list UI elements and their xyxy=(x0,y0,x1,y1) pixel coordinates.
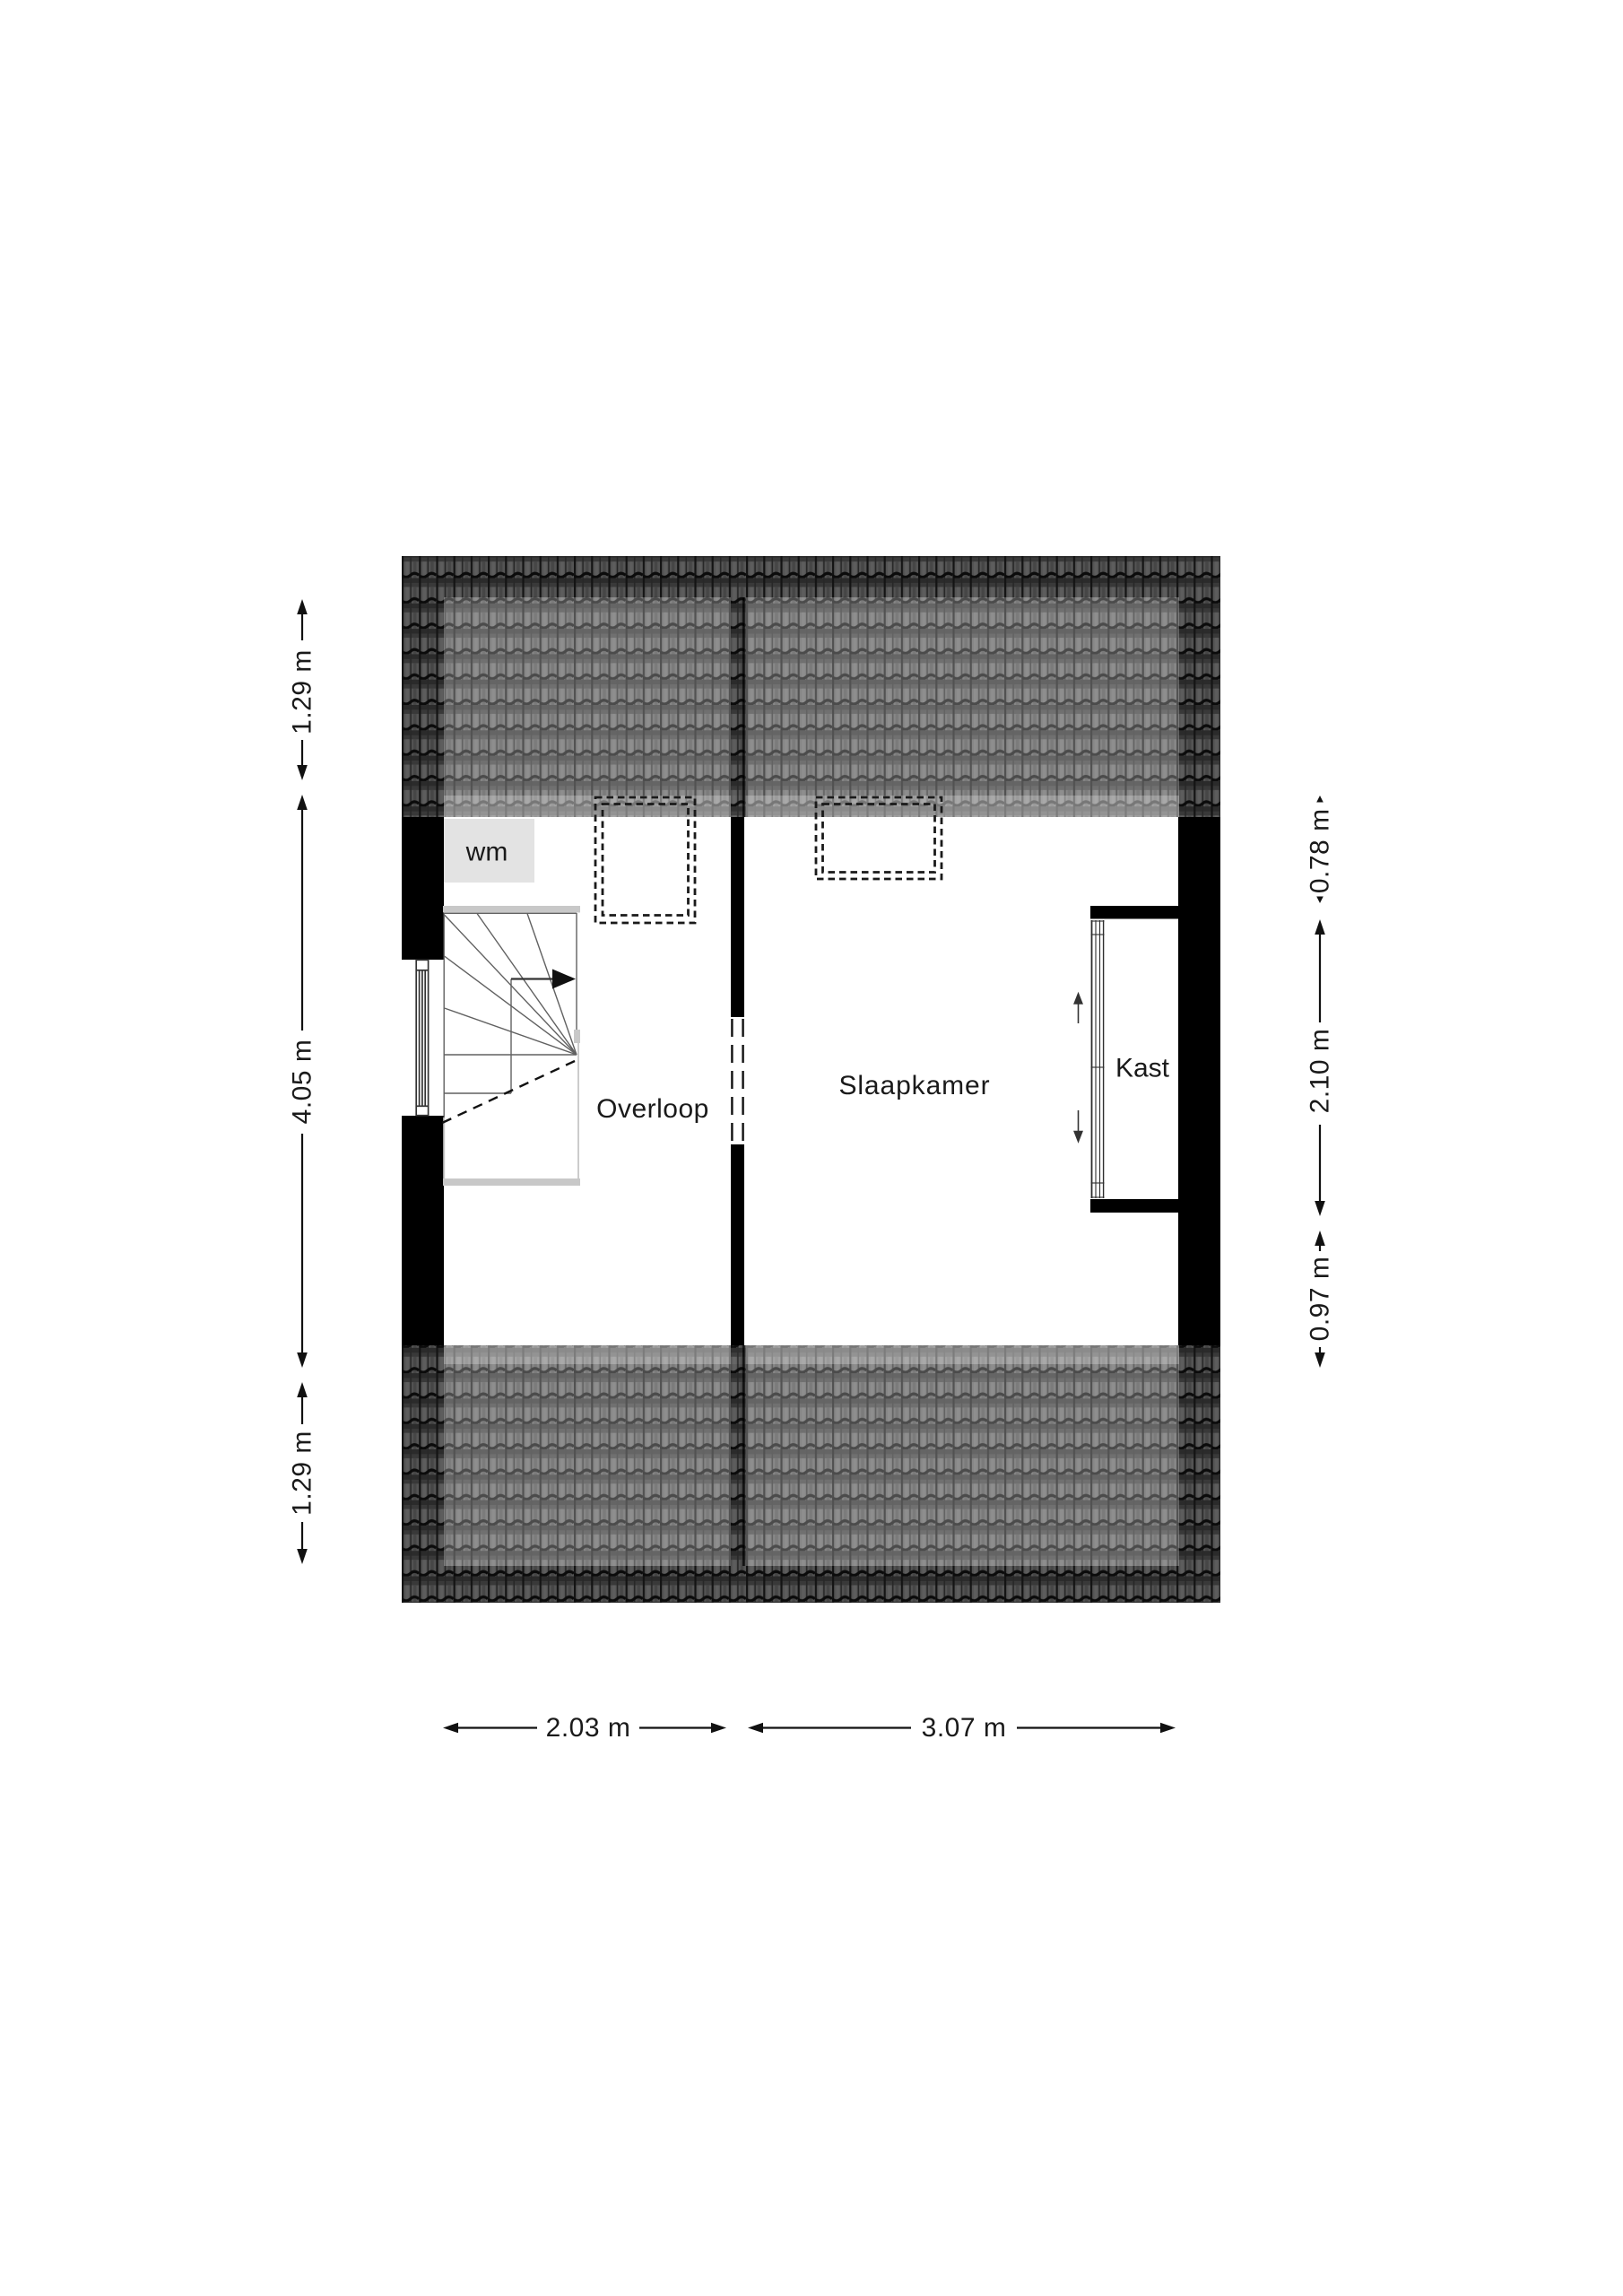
svg-text:2.10 m: 2.10 m xyxy=(1306,1029,1335,1114)
svg-text:wm: wm xyxy=(465,838,508,867)
svg-text:0.78 m: 0.78 m xyxy=(1306,808,1335,893)
svg-text:0.97 m: 0.97 m xyxy=(1306,1257,1335,1342)
svg-text:3.07 m: 3.07 m xyxy=(922,1713,1007,1743)
svg-text:Slaapkamer: Slaapkamer xyxy=(838,1071,990,1100)
svg-text:Overloop: Overloop xyxy=(596,1094,709,1124)
svg-text:2.03 m: 2.03 m xyxy=(546,1713,631,1743)
svg-text:Kast: Kast xyxy=(1115,1054,1170,1083)
svg-text:1.29 m: 1.29 m xyxy=(288,649,317,735)
svg-text:1.29 m: 1.29 m xyxy=(288,1431,317,1516)
svg-text:4.05 m: 4.05 m xyxy=(288,1039,317,1125)
